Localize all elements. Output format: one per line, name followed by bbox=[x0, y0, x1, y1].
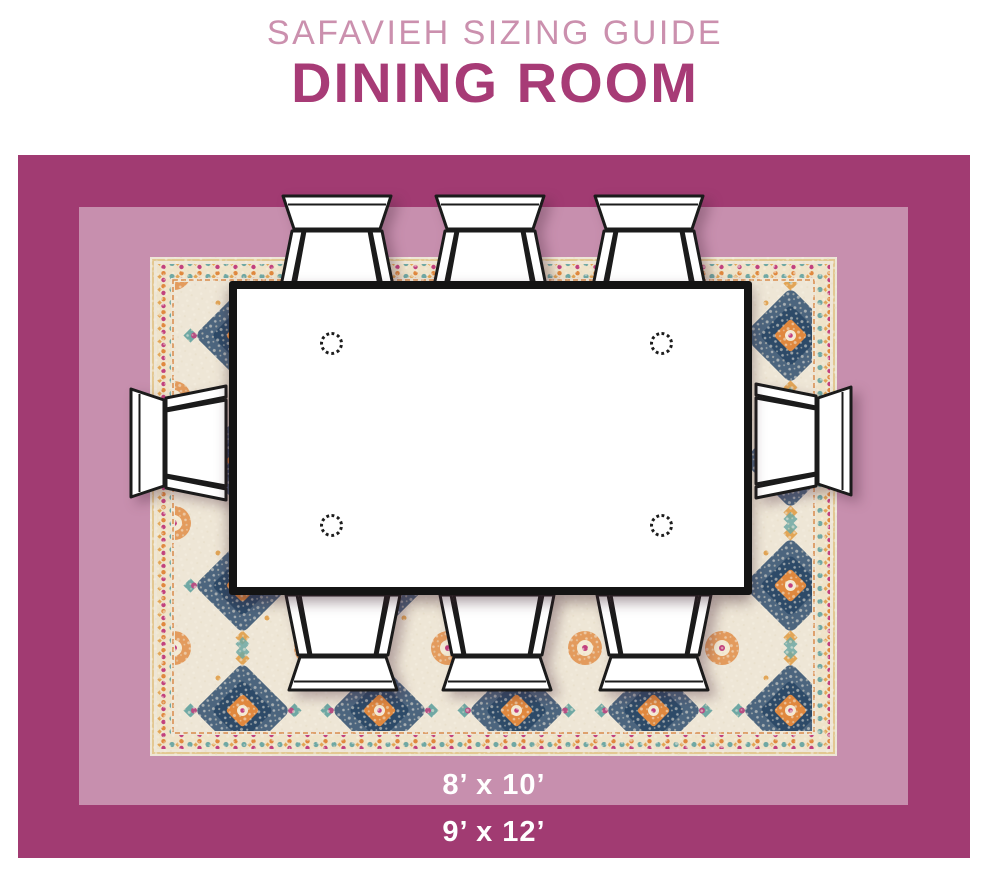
chair-top-right bbox=[589, 194, 709, 294]
chair-top-left bbox=[277, 194, 397, 294]
dining-table bbox=[229, 281, 752, 595]
table-mark-top-left bbox=[320, 332, 343, 355]
room-diagram: 8’ x 10’ 9’ x 12’ bbox=[18, 155, 970, 858]
chair-top-center bbox=[430, 194, 550, 294]
table-mark-bottom-right bbox=[650, 514, 673, 537]
chair-bottom-right bbox=[594, 592, 714, 692]
chair-bottom-left bbox=[283, 592, 403, 692]
size-label-8x10: 8’ x 10’ bbox=[18, 769, 970, 802]
chair-right-end bbox=[743, 391, 863, 491]
table-mark-top-right bbox=[650, 332, 673, 355]
page-title: DINING ROOM bbox=[0, 54, 990, 113]
brand-title: SAFAVIEH SIZING GUIDE bbox=[0, 15, 990, 52]
page: SAFAVIEH SIZING GUIDE DINING ROOM bbox=[0, 0, 990, 878]
chair-left-end bbox=[119, 393, 239, 493]
table-mark-bottom-left bbox=[320, 514, 343, 537]
chair-bottom-center bbox=[437, 592, 557, 692]
size-label-9x12: 9’ x 12’ bbox=[18, 816, 970, 849]
